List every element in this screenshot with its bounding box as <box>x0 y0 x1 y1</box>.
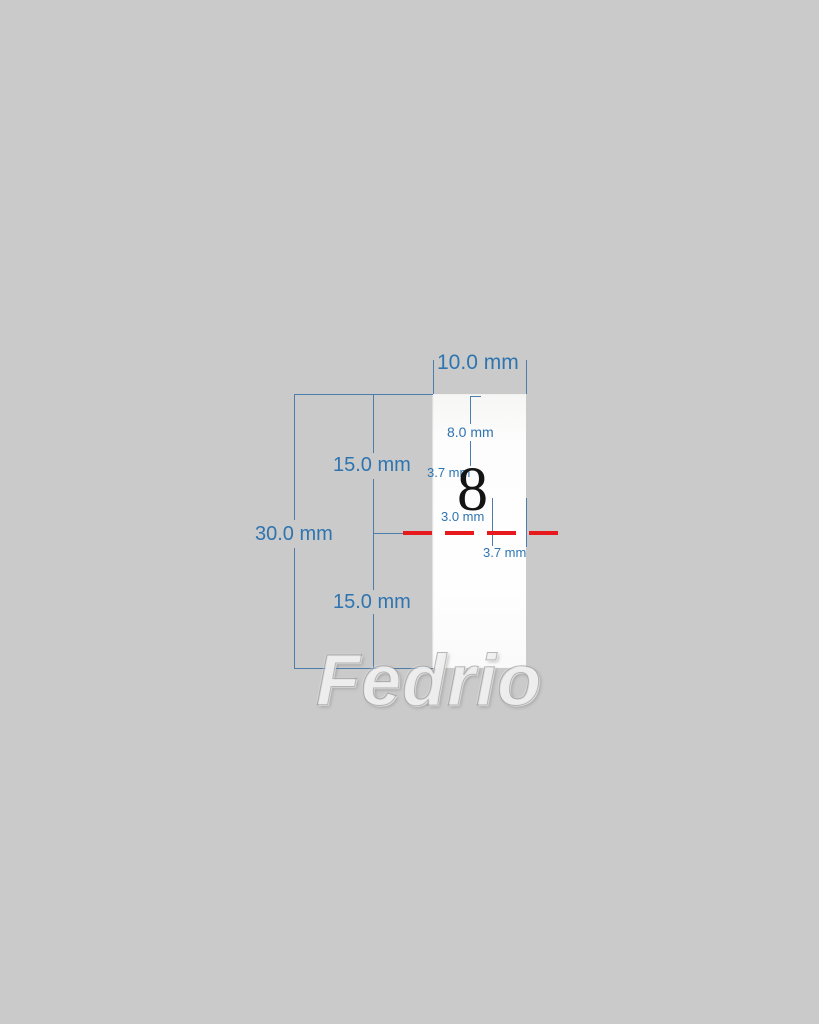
half-height-line-seg1 <box>373 394 374 453</box>
dim-label-lower-half: 15.0 mm <box>333 591 411 613</box>
brand-watermark: Fedrio <box>316 640 542 722</box>
dim-label-total-height: 30.0 mm <box>255 523 333 545</box>
mid-height-tick <box>373 533 403 534</box>
total-height-line-lower <box>294 548 295 668</box>
dim-label-center-spacing: 3.0 mm <box>441 510 484 524</box>
inner-ext-top-tick <box>470 396 481 397</box>
half-height-line-seg2 <box>373 479 374 590</box>
dimension-drawing-canvas: 10.0 mm 30.0 mm 15.0 mm 15.0 mm 8.0 mm 3… <box>0 0 819 1024</box>
lower-ext-line-left <box>492 498 493 546</box>
dim-label-offset-lower: 3.7 mm <box>483 546 526 560</box>
width-dim-tick-right <box>526 360 527 394</box>
total-height-line-upper <box>294 394 295 520</box>
dim-label-inner-depth: 8.0 mm <box>447 425 494 440</box>
dim-frame-top-line <box>294 394 433 395</box>
lower-ext-line-right <box>526 498 527 547</box>
dim-label-upper-half: 15.0 mm <box>333 454 411 476</box>
dim-label-width: 10.0 mm <box>437 351 519 374</box>
width-dim-tick-left <box>433 360 434 394</box>
centerline-red-dashed <box>403 531 566 535</box>
inner-ext-line-seg1 <box>470 396 471 424</box>
